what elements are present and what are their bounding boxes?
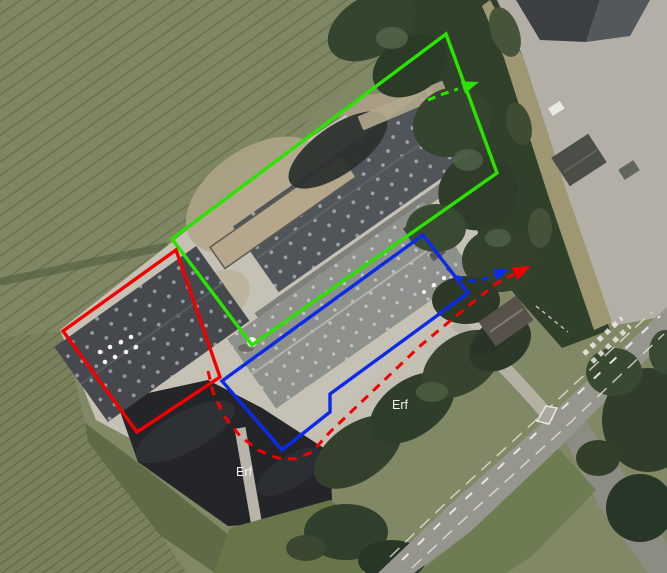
map-labels: ErfErf bbox=[236, 398, 409, 479]
route-green-dashed bbox=[428, 89, 458, 100]
annotation-overlay: ErfErf bbox=[0, 0, 667, 573]
aerial-map: ErfErf bbox=[0, 0, 667, 573]
route-blue-dashed-arrowhead bbox=[493, 269, 509, 280]
route-green-dashed-arrowhead bbox=[461, 81, 479, 93]
zone-boundaries bbox=[63, 34, 497, 450]
route-red-dashed-arrowhead bbox=[512, 266, 531, 280]
zone-blue-south bbox=[222, 235, 468, 450]
erf-label-east: Erf bbox=[392, 398, 409, 412]
erf-label-west: Erf bbox=[236, 465, 253, 479]
zone-red-west bbox=[63, 250, 220, 432]
route-red-dashed bbox=[208, 274, 514, 459]
